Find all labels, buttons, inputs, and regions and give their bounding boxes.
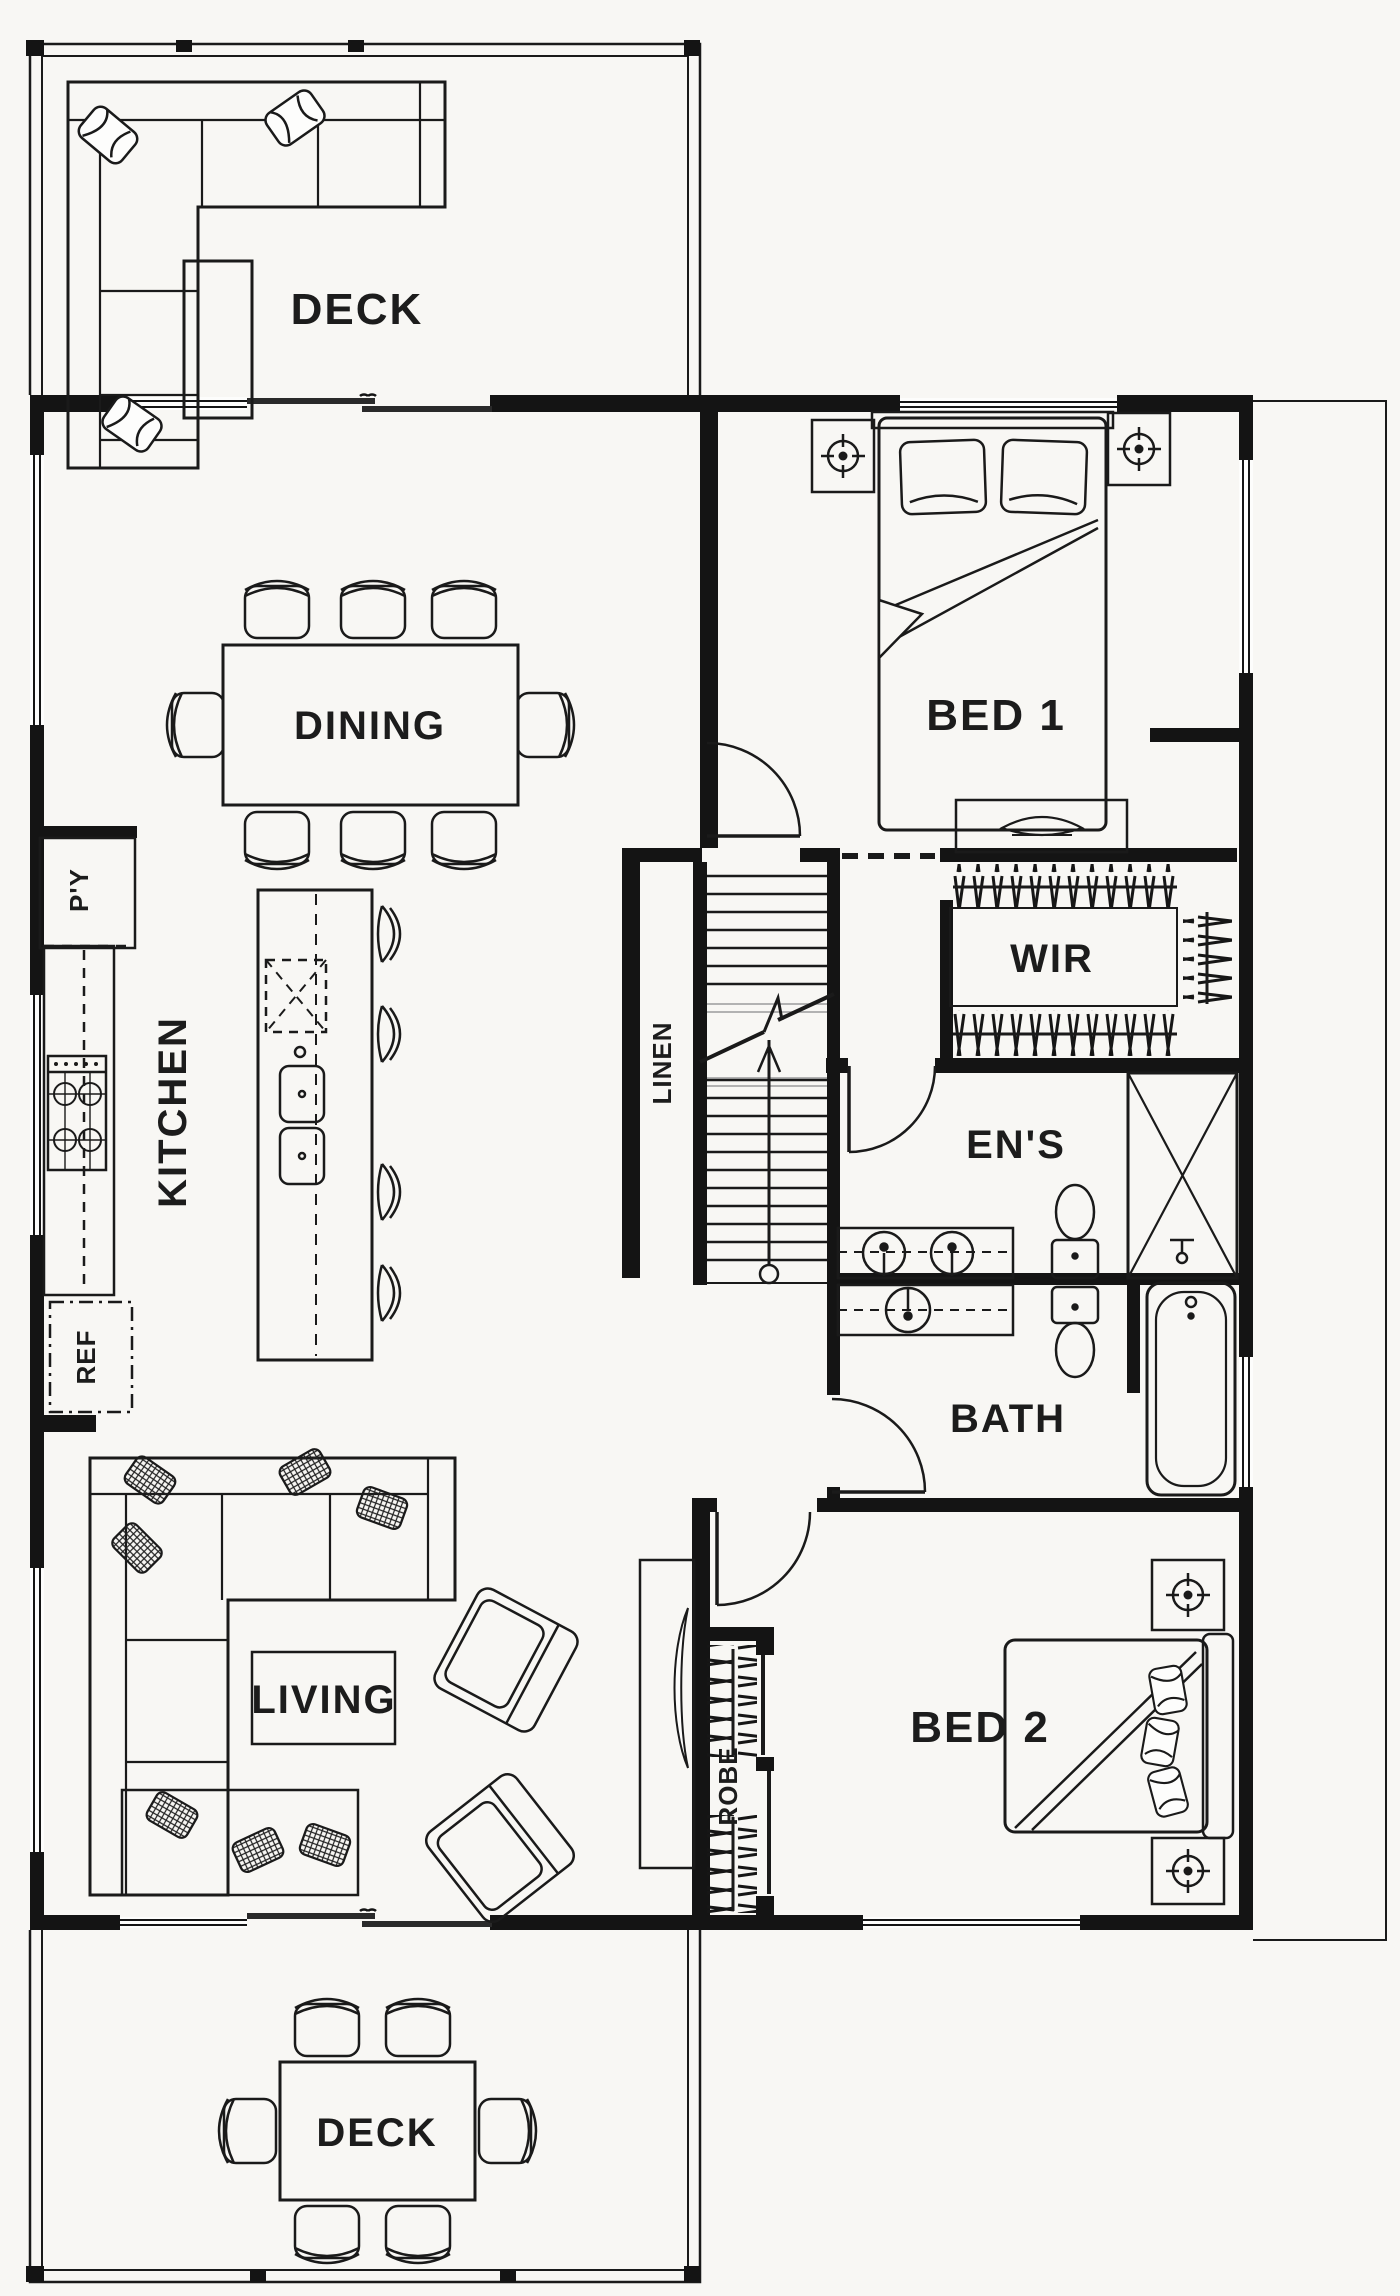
bar-stool: [378, 1164, 400, 1220]
dining-chair: [432, 581, 496, 638]
roof-eave-line: [1253, 401, 1386, 1940]
bed1-door: [707, 743, 800, 836]
armchair: [421, 1769, 578, 1926]
windows: [30, 394, 1253, 1928]
outdoor-chair: [386, 2206, 450, 2263]
robe-sliding-panel: [761, 1655, 765, 1755]
outdoor-chair: [295, 2206, 359, 2263]
ensuite: [838, 1073, 1237, 1278]
bathroom: [838, 1283, 1235, 1495]
bed1-throw: [879, 520, 1098, 648]
bath-door: [832, 1399, 925, 1492]
label-living: LIVING: [251, 1678, 396, 1722]
label-deck-bottom: DECK: [316, 2111, 437, 2155]
bed1-room: [812, 412, 1170, 852]
armchair: [430, 1584, 581, 1735]
tv-icon: [675, 1608, 689, 1768]
lamp-icon: [1117, 427, 1161, 471]
robe-sliding-panel: [767, 1771, 771, 1894]
bar-stool: [378, 1006, 400, 1062]
label-kitchen: KITCHEN: [151, 1016, 195, 1208]
living-label-box: LIVING: [251, 1652, 396, 1744]
dining-chair: [341, 581, 405, 638]
dining-chair: [517, 693, 574, 757]
bed1-dresser: [956, 800, 1127, 852]
bed2-door: [717, 1512, 810, 1605]
label-bed1: BED 1: [926, 691, 1066, 740]
bar-stool: [378, 1265, 400, 1321]
room-labels: DECK DINING KITCHEN P'Y REF BED 1 WIR LI…: [64, 285, 1094, 2155]
sliding-door-top: [247, 394, 492, 412]
kitchen-sink: [280, 1047, 324, 1184]
bath-toilet: [1052, 1287, 1098, 1377]
lamp-icon: [821, 434, 865, 478]
dining-chair: [341, 812, 405, 869]
label-bath: BATH: [950, 1397, 1066, 1441]
label-pantry: P'Y: [64, 868, 94, 912]
kitchen: [40, 838, 400, 1412]
ensuite-vanity: [838, 1228, 1013, 1278]
label-fridge: REF: [71, 1330, 101, 1385]
staircase: [700, 876, 834, 1283]
floor-plan-drawing: DECK DINING KITCHEN P'Y REF BED 1 WIR LI…: [0, 0, 1400, 2296]
label-linen: LINEN: [647, 1022, 677, 1105]
bed1-door-opening: [702, 848, 800, 862]
floor-plan-page: DECK DINING KITCHEN P'Y REF BED 1 WIR LI…: [0, 0, 1400, 2296]
dining-chair: [245, 581, 309, 638]
doors: [707, 743, 935, 1605]
bed1-headboard: [872, 412, 1113, 428]
label-ensuite: EN'S: [966, 1123, 1066, 1167]
dining-chair: [432, 812, 496, 869]
label-bed2: BED 2: [910, 1703, 1050, 1752]
outdoor-chair: [219, 2099, 276, 2163]
ensuite-door: [849, 1066, 935, 1152]
lamp-icon: [1166, 1849, 1210, 1893]
dining-chair: [167, 693, 224, 757]
label-deck-top: DECK: [291, 285, 424, 334]
lamp-icon: [1166, 1573, 1210, 1617]
bath-vanity: [838, 1285, 1013, 1335]
label-dining: DINING: [294, 704, 446, 748]
outdoor-chair: [479, 2099, 536, 2163]
label-robe: ROBE: [713, 1746, 743, 1825]
ensuite-toilet: [1052, 1185, 1098, 1278]
cooktop: [48, 1056, 106, 1170]
walls: [30, 395, 1253, 1930]
tv-unit: [640, 1560, 694, 1868]
outdoor-chair: [295, 1999, 359, 2056]
sliding-door-bottom: [247, 1909, 492, 1927]
top-deck-rail: [26, 40, 700, 395]
label-wir: WIR: [1010, 937, 1094, 981]
kitchen-bench: [44, 946, 114, 1295]
shower: [1128, 1073, 1237, 1278]
dining-chair: [245, 812, 309, 869]
outdoor-chair: [386, 1999, 450, 2056]
island-bench: [258, 890, 372, 1360]
bar-stool: [378, 906, 400, 962]
bathtub: [1147, 1283, 1235, 1495]
